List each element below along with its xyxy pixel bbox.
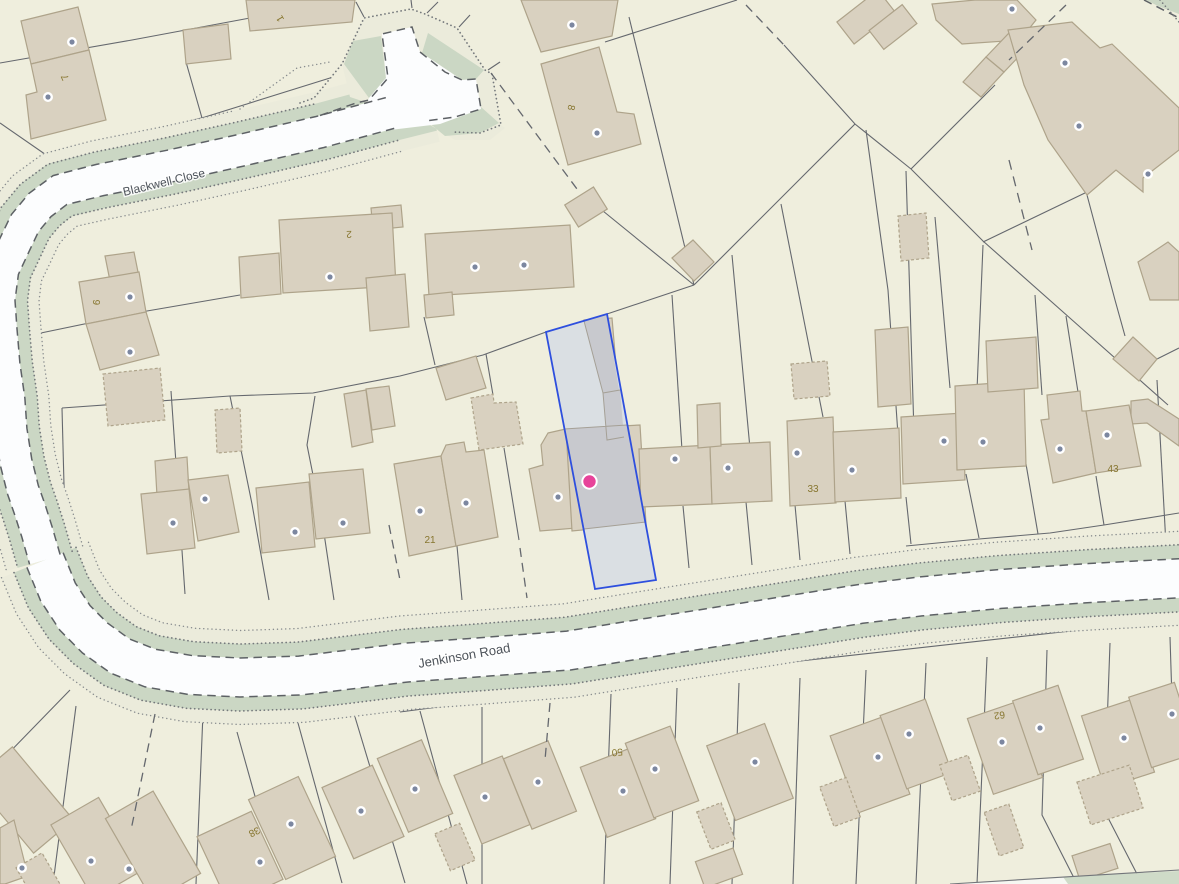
svg-text:2: 2 — [346, 228, 352, 239]
svg-text:62: 62 — [993, 708, 1006, 721]
svg-text:21: 21 — [424, 535, 436, 546]
svg-text:33: 33 — [807, 484, 819, 495]
svg-text:43: 43 — [1107, 464, 1119, 475]
svg-text:50: 50 — [611, 746, 623, 758]
